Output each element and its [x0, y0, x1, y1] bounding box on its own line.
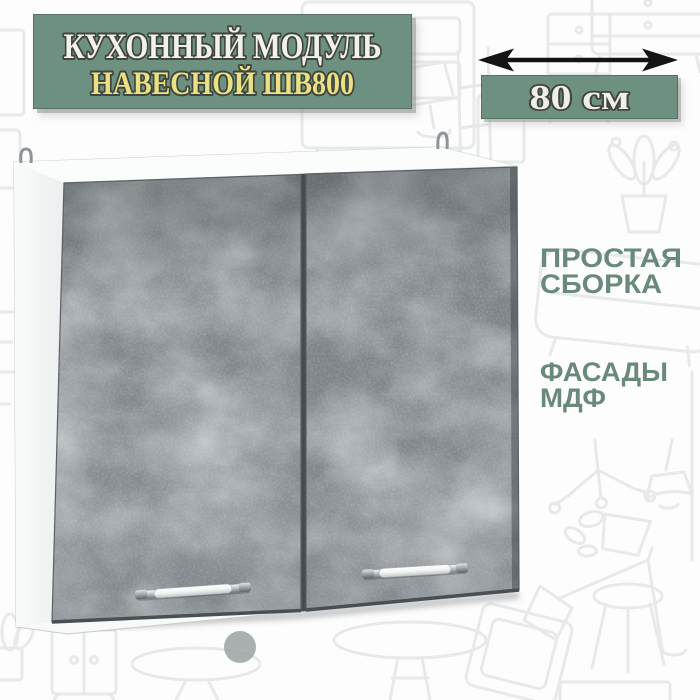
feature-captions: ПРОСТАЯ СБОРКА ФАСАДЫ МДФ — [535, 233, 700, 418]
right-door — [300, 155, 530, 620]
right-hanger-loop-icon — [438, 133, 447, 149]
left-door — [40, 160, 315, 635]
width-dimension-box: 80 см — [481, 75, 678, 119]
left-hanger-loop-icon — [21, 149, 32, 163]
product-image: КУХОННЫЙ МОДУЛЬ НАВЕСНОЙ ШВ800 80 см ПРО… — [0, 0, 700, 700]
banner-line1: КУХОННЫЙ МОДУЛЬ — [64, 26, 382, 66]
width-arrow-icon — [474, 42, 682, 78]
banner-line2: НАВЕСНОЙ ШВ800 — [91, 65, 354, 102]
feature-mdf-facades-line2: МДФ — [540, 383, 606, 413]
title-banner: КУХОННЫЙ МОДУЛЬ НАВЕСНОЙ ШВ800 — [33, 14, 412, 109]
feature-easy-assembly-line2: СБОРКА — [540, 269, 662, 299]
width-dimension-label: 80 см — [530, 78, 630, 117]
